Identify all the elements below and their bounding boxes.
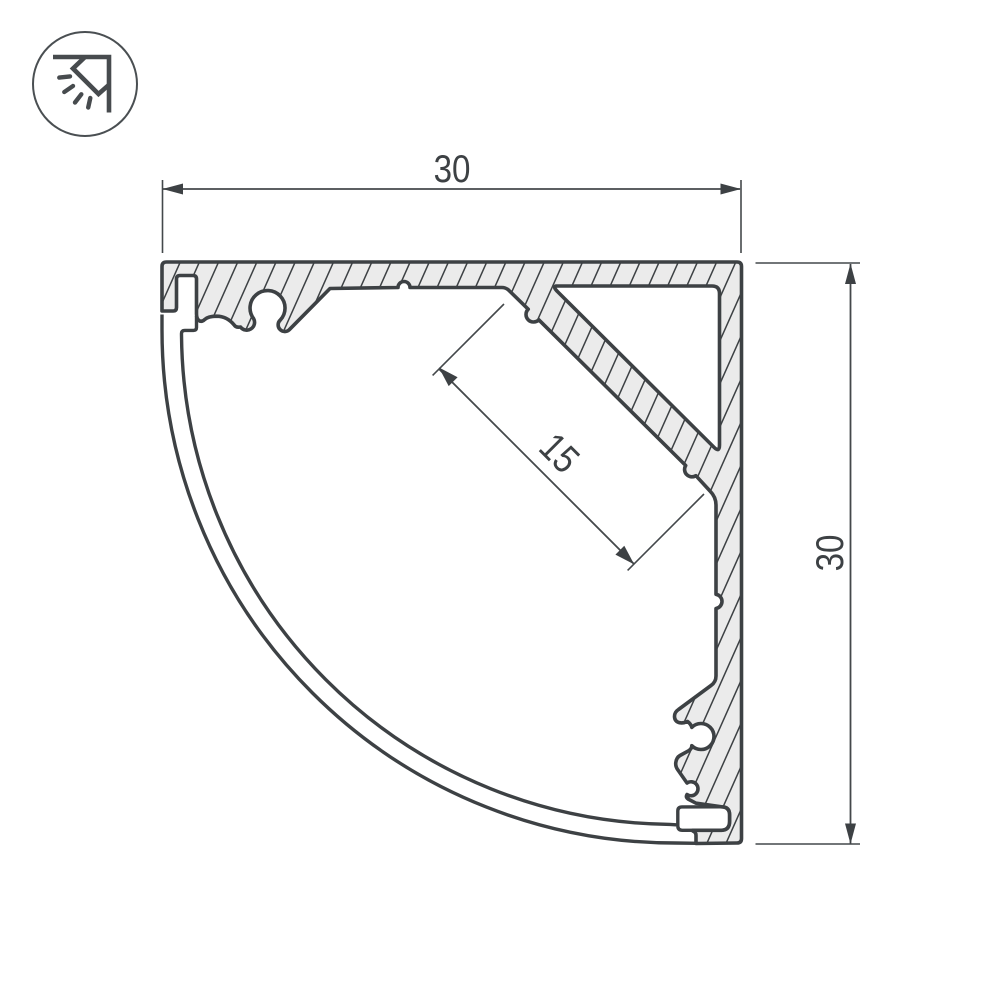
svg-text:30: 30 <box>434 146 471 190</box>
svg-text:30: 30 <box>807 535 851 572</box>
svg-text:15: 15 <box>531 424 588 481</box>
